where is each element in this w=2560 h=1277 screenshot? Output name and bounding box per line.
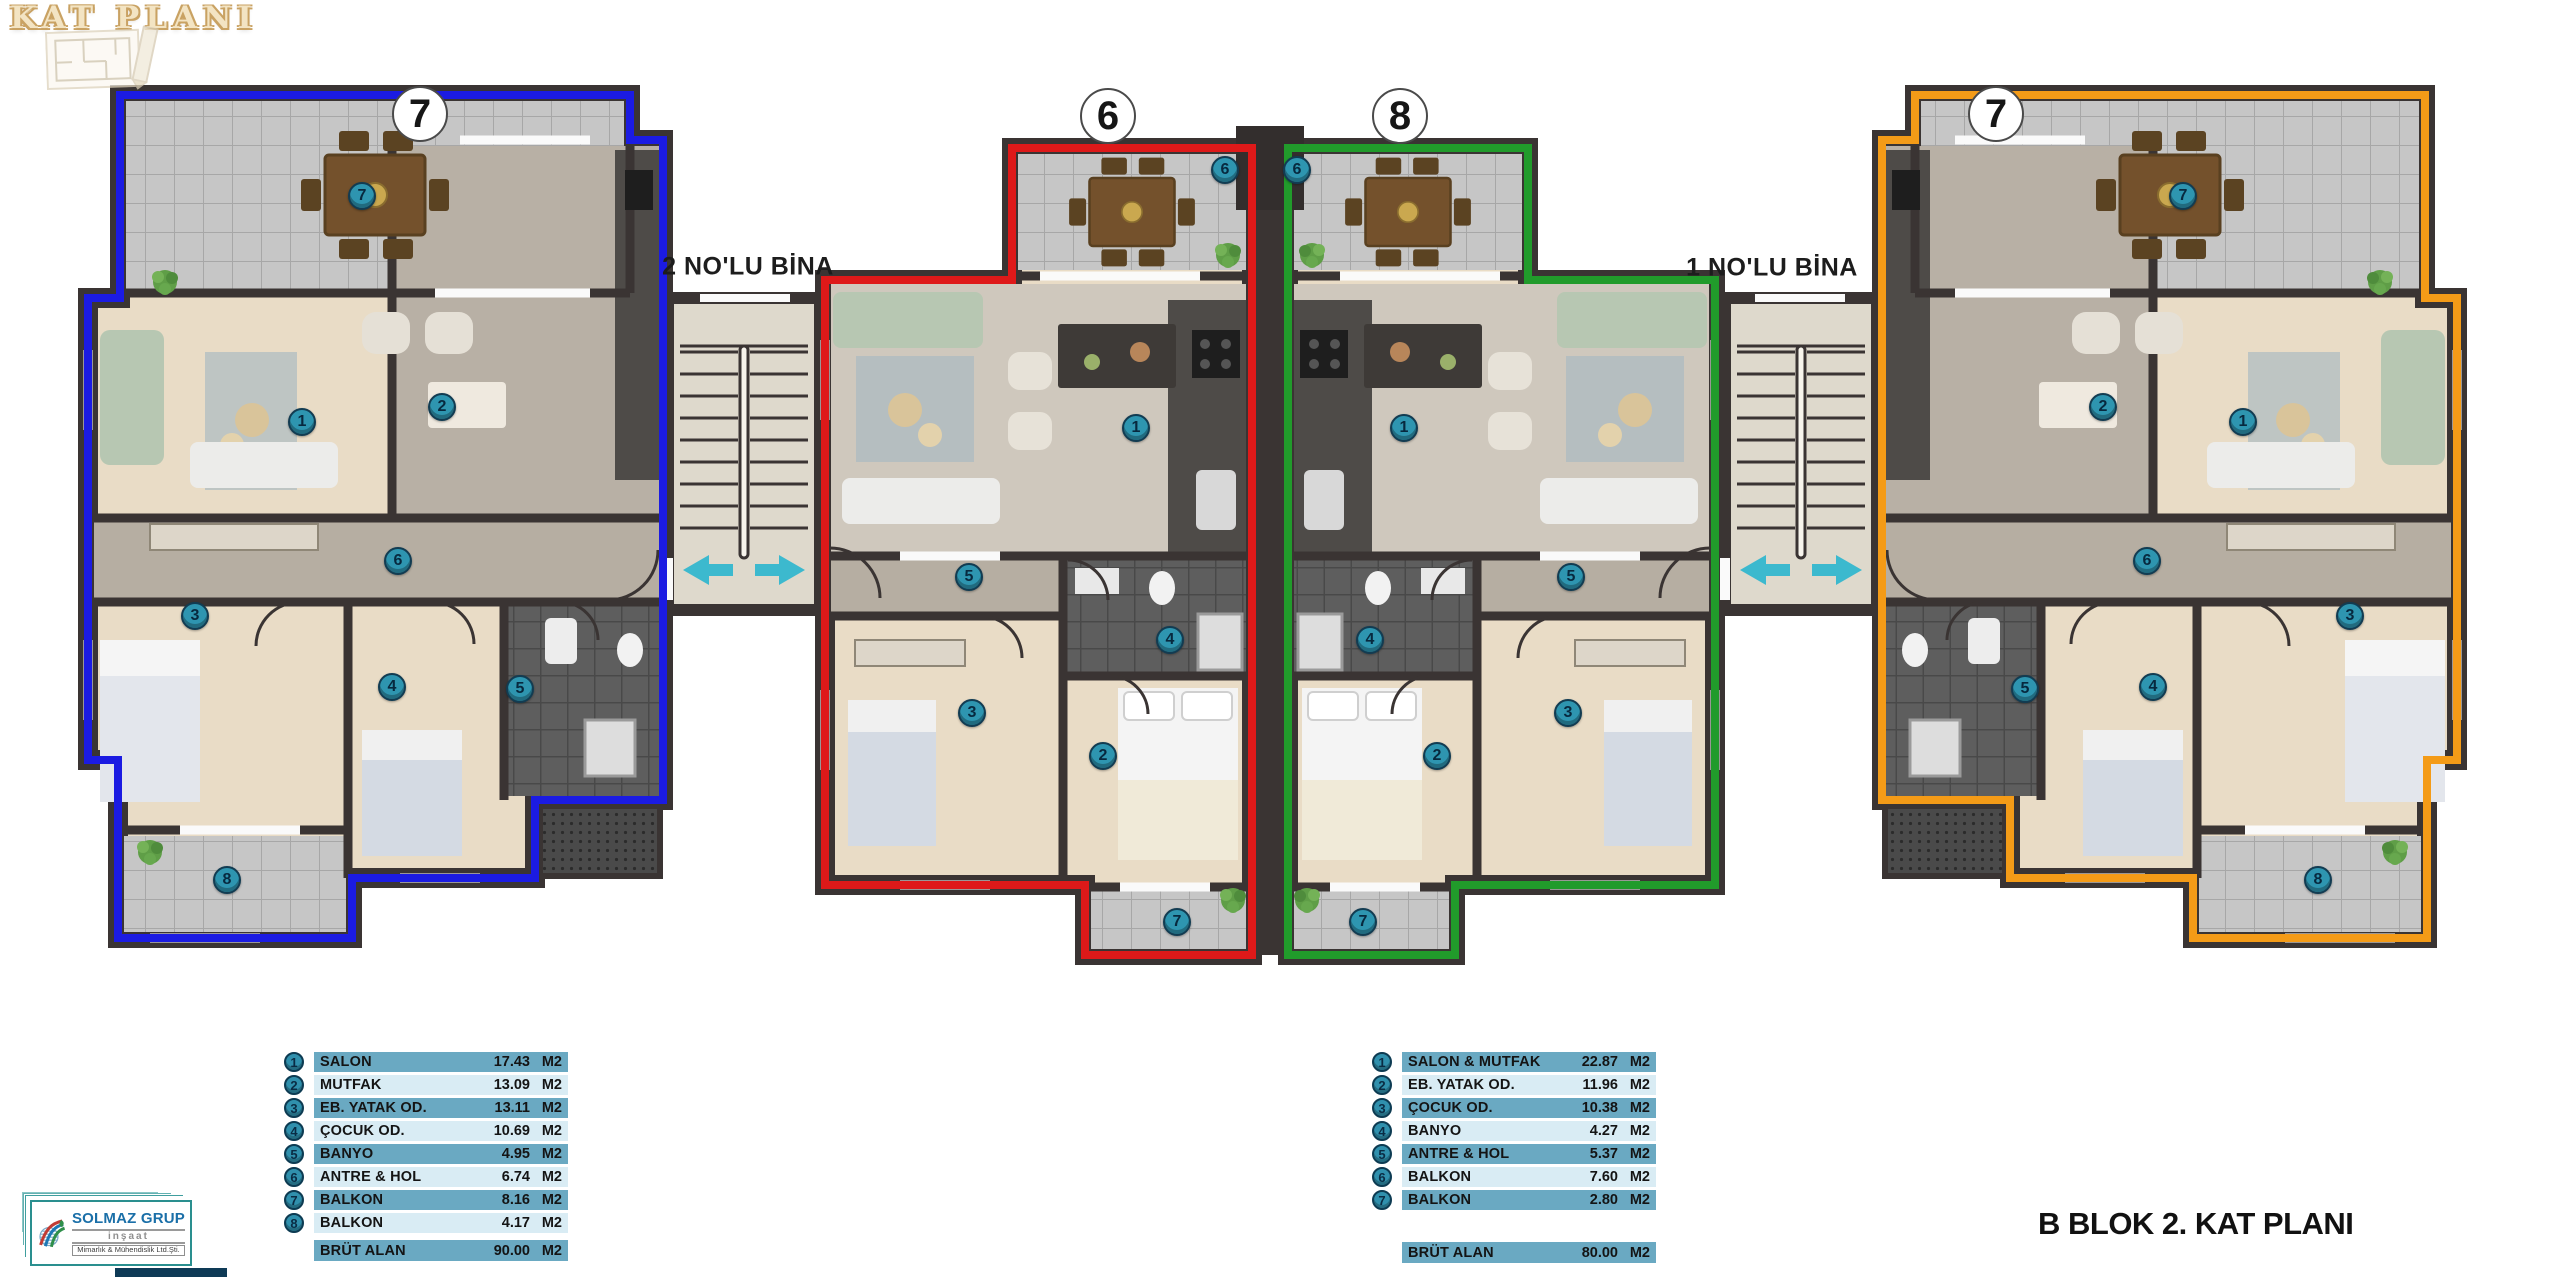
legend-row: 3 EB. YATAK OD. 13.11 M2 — [284, 1098, 634, 1118]
room-area-unit: M2 — [530, 1123, 562, 1139]
room-area-unit: M2 — [1618, 1192, 1650, 1208]
total-value: 90.00 — [482, 1243, 530, 1259]
room-area-value: 2.80 — [1570, 1192, 1618, 1208]
legend-row: 3 ÇOCUK OD. 10.38 M2 — [1372, 1098, 1722, 1118]
room-area-value: 11.96 — [1570, 1077, 1618, 1093]
room-number-badge-small: 4 — [1372, 1121, 1392, 1141]
room-area-unit: M2 — [1618, 1077, 1650, 1093]
legend-row-bar: BALKON 4.17 M2 — [314, 1213, 568, 1233]
room-area-unit: M2 — [530, 1054, 562, 1070]
legend-90m2: 1 SALON 17.43 M2 2 MUTFAK 13.09 M2 3 — [284, 1052, 634, 1261]
room-label: SALON — [320, 1054, 482, 1070]
total-label: BRÜT ALAN — [1408, 1245, 1570, 1261]
room-number-badge-small: 2 — [1372, 1075, 1392, 1095]
room-area-value: 4.17 — [482, 1215, 530, 1231]
shaft-block — [1236, 126, 1304, 210]
plan-name-label: B BLOK 2. KAT PLANI — [2038, 1206, 2353, 1242]
unit-green-interior — [1288, 148, 1715, 955]
room-area-value: 17.43 — [482, 1054, 530, 1070]
legend-row: 4 BANYO 4.27 M2 — [1372, 1121, 1722, 1141]
floorplan-sketch-icon — [45, 25, 165, 98]
total-area-row: BRÜT ALAN 90.00 M2 — [314, 1240, 568, 1261]
legend-row: 4 ÇOCUK OD. 10.69 M2 — [284, 1121, 634, 1141]
room-area-value: 13.11 — [482, 1100, 530, 1116]
unit-red-interior — [825, 148, 1252, 955]
room-number-badge-small: 5 — [1372, 1144, 1392, 1164]
room-number-badge-small: 4 — [284, 1121, 304, 1141]
building-1 — [1288, 95, 2457, 955]
room-area-unit: M2 — [530, 1192, 562, 1208]
room-area-value: 4.27 — [1570, 1123, 1618, 1139]
legend-row-bar: ÇOCUK OD. 10.69 M2 — [314, 1121, 568, 1141]
room-area-value: 10.69 — [482, 1123, 530, 1139]
room-label: BALKON — [320, 1192, 482, 1208]
legend-row: 7 BALKON 8.16 M2 — [284, 1190, 634, 1210]
total-unit: M2 — [530, 1243, 562, 1259]
logo-underline-strip — [115, 1268, 227, 1277]
legend-row: 1 SALON 17.43 M2 — [284, 1052, 634, 1072]
legend-row-bar: BALKON 7.60 M2 — [1402, 1167, 1656, 1187]
floor-plan-page: KAT PLANI — [0, 0, 2560, 1277]
legend-row-bar: SALON 17.43 M2 — [314, 1052, 568, 1072]
room-label: ANTRE & HOL — [1408, 1146, 1570, 1162]
room-area-value: 6.74 — [482, 1169, 530, 1185]
room-area-unit: M2 — [530, 1146, 562, 1162]
room-number-badge-small: 7 — [1372, 1190, 1392, 1210]
legend-row: 8 BALKON 4.17 M2 — [284, 1213, 634, 1233]
logo-tagline: Mimarlık & Mühendislik Ltd.Şti. — [72, 1245, 185, 1256]
room-label: ÇOCUK OD. — [1408, 1100, 1570, 1116]
legend-row-bar: ÇOCUK OD. 10.38 M2 — [1402, 1098, 1656, 1118]
legend-rows: 1 SALON 17.43 M2 2 MUTFAK 13.09 M2 3 — [284, 1052, 634, 1233]
logo-mark-icon — [37, 1207, 67, 1259]
room-area-unit: M2 — [1618, 1054, 1650, 1070]
room-area-value: 5.37 — [1570, 1146, 1618, 1162]
total-label: BRÜT ALAN — [320, 1243, 482, 1259]
legend-row: 1 SALON & MUTFAK 22.87 M2 — [1372, 1052, 1722, 1072]
room-area-unit: M2 — [530, 1100, 562, 1116]
room-label: MUTFAK — [320, 1077, 482, 1093]
legend-row: 5 BANYO 4.95 M2 — [284, 1144, 634, 1164]
legend-row-bar: ANTRE & HOL 5.37 M2 — [1402, 1144, 1656, 1164]
room-area-value: 22.87 — [1570, 1054, 1618, 1070]
room-label: BANYO — [1408, 1123, 1570, 1139]
legend-row-bar: BANYO 4.95 M2 — [314, 1144, 568, 1164]
party-wall — [1256, 140, 1284, 955]
room-area-unit: M2 — [1618, 1123, 1650, 1139]
legend-row-bar: BALKON 8.16 M2 — [314, 1190, 568, 1210]
legend-row: 7 BALKON 2.80 M2 — [1372, 1190, 1722, 1210]
room-area-unit: M2 — [1618, 1100, 1650, 1116]
legend-rows: 1 SALON & MUTFAK 22.87 M2 2 EB. YATAK OD… — [1372, 1052, 1722, 1210]
room-label: BANYO — [320, 1146, 482, 1162]
room-area-unit: M2 — [530, 1215, 562, 1231]
room-number-badge-small: 3 — [284, 1098, 304, 1118]
legend-row-bar: EB. YATAK OD. 13.11 M2 — [314, 1098, 568, 1118]
room-number-badge-small: 6 — [1372, 1167, 1392, 1187]
room-label: EB. YATAK OD. — [1408, 1077, 1570, 1093]
legend-80m2: 1 SALON & MUTFAK 22.87 M2 2 EB. YATAK OD… — [1372, 1052, 1722, 1263]
room-area-value: 4.95 — [482, 1146, 530, 1162]
room-label: EB. YATAK OD. — [320, 1100, 482, 1116]
logo-subtitle: inşaat — [72, 1229, 185, 1245]
legend-row-bar: BANYO 4.27 M2 — [1402, 1121, 1656, 1141]
room-number-badge-small: 1 — [284, 1052, 304, 1072]
room-number-badge-small: 2 — [284, 1075, 304, 1095]
room-number-badge-small: 6 — [284, 1167, 304, 1187]
room-label: ÇOCUK OD. — [320, 1123, 482, 1139]
total-value: 80.00 — [1570, 1245, 1618, 1261]
room-area-value: 7.60 — [1570, 1169, 1618, 1185]
legend-row: 2 EB. YATAK OD. 11.96 M2 — [1372, 1075, 1722, 1095]
unit-blue-interior — [88, 95, 663, 938]
legend-row: 6 BALKON 7.60 M2 — [1372, 1167, 1722, 1187]
stairwell-right — [1725, 298, 1877, 610]
room-area-unit: M2 — [530, 1077, 562, 1093]
total-area-row: BRÜT ALAN 80.00 M2 — [1402, 1242, 1656, 1263]
room-area-unit: M2 — [530, 1169, 562, 1185]
room-label: SALON & MUTFAK — [1408, 1054, 1570, 1070]
legend-row: 2 MUTFAK 13.09 M2 — [284, 1075, 634, 1095]
room-label: BALKON — [1408, 1169, 1570, 1185]
stairwell-left — [668, 298, 820, 610]
room-label: BALKON — [320, 1215, 482, 1231]
building-2 — [88, 95, 1252, 955]
room-number-badge-small: 8 — [284, 1213, 304, 1233]
logo-company-name: SOLMAZ GRUP — [72, 1210, 185, 1227]
room-area-value: 13.09 — [482, 1077, 530, 1093]
room-area-value: 10.38 — [1570, 1100, 1618, 1116]
room-label: ANTRE & HOL — [320, 1169, 482, 1185]
legend-row-bar: MUTFAK 13.09 M2 — [314, 1075, 568, 1095]
room-area-value: 8.16 — [482, 1192, 530, 1208]
room-number-badge-small: 1 — [1372, 1052, 1392, 1072]
room-label: BALKON — [1408, 1192, 1570, 1208]
logo-text-block: SOLMAZ GRUP inşaat Mimarlık & Mühendisli… — [72, 1210, 185, 1255]
unit-orange-interior — [1882, 95, 2457, 938]
legend-row-bar: EB. YATAK OD. 11.96 M2 — [1402, 1075, 1656, 1095]
room-area-unit: M2 — [1618, 1169, 1650, 1185]
total-unit: M2 — [1618, 1245, 1650, 1261]
legend-row: 6 ANTRE & HOL 6.74 M2 — [284, 1167, 634, 1187]
legend-row: 5 ANTRE & HOL 5.37 M2 — [1372, 1144, 1722, 1164]
legend-row-bar: ANTRE & HOL 6.74 M2 — [314, 1167, 568, 1187]
company-logo: SOLMAZ GRUP inşaat Mimarlık & Mühendisli… — [30, 1200, 192, 1266]
room-number-badge-small: 7 — [284, 1190, 304, 1210]
room-number-badge-small: 5 — [284, 1144, 304, 1164]
legend-row-bar: BALKON 2.80 M2 — [1402, 1190, 1656, 1210]
legend-row-bar: SALON & MUTFAK 22.87 M2 — [1402, 1052, 1656, 1072]
room-area-unit: M2 — [1618, 1146, 1650, 1162]
room-number-badge-small: 3 — [1372, 1098, 1392, 1118]
